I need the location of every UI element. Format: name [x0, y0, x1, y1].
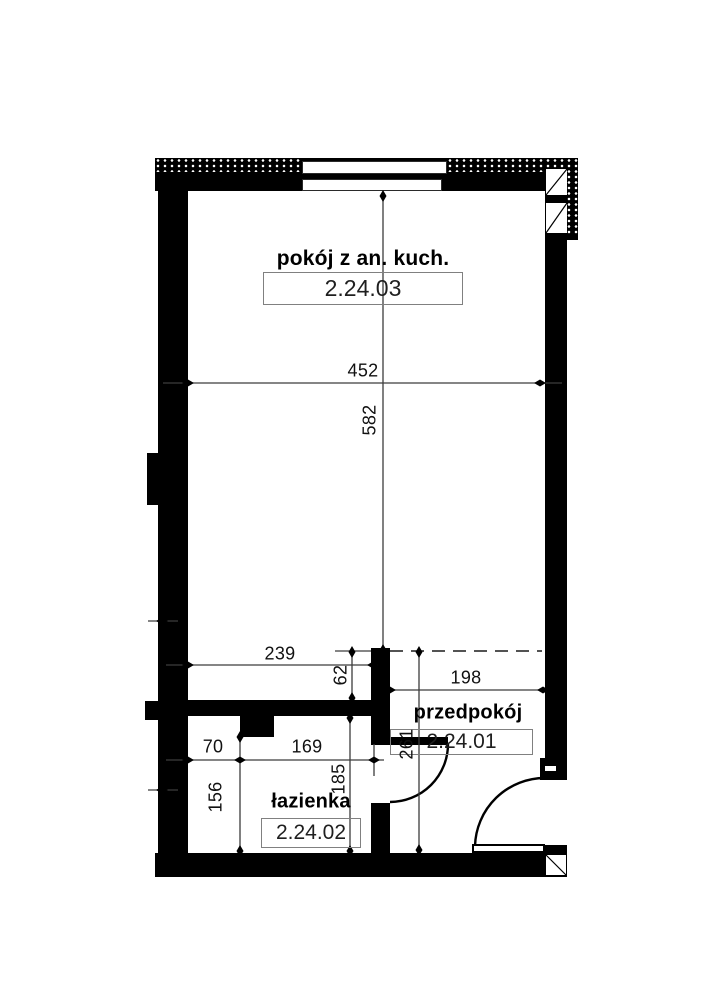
entry-door-arc [475, 778, 545, 846]
dim-left-width: 239 [265, 644, 296, 665]
room-number-hall: 2.24.01 [426, 730, 496, 754]
dim-pass-gap: 62 [331, 665, 352, 686]
dim-bath-left: 70 [203, 737, 224, 758]
dim-hall-height: 261 [397, 729, 418, 760]
dim-main-height: 582 [360, 405, 381, 436]
dim-hall-width: 198 [451, 668, 482, 689]
dim-bath-height: 185 [329, 764, 350, 795]
room-number-bath: 2.24.02 [276, 821, 346, 845]
floor-plan: pokój z an. kuch. 2.24.03 przedpokój 2.2… [0, 0, 728, 1000]
corner-section-symbol-bottom-right [546, 855, 566, 875]
room-number-main: 2.24.03 [325, 275, 402, 302]
room-number-box-bath: 2.24.02 [261, 818, 361, 848]
dim-bath-left-height: 156 [206, 782, 227, 813]
plan-linework [0, 0, 728, 1000]
room-number-box-main: 2.24.03 [263, 272, 463, 305]
room-label-hall: przedpokój [414, 702, 523, 725]
dim-main-width: 452 [348, 361, 379, 382]
dim-bath-width: 169 [292, 737, 323, 758]
corner-section-symbol-top-right [546, 169, 567, 233]
room-label-main: pokój z an. kuch. [277, 247, 450, 271]
